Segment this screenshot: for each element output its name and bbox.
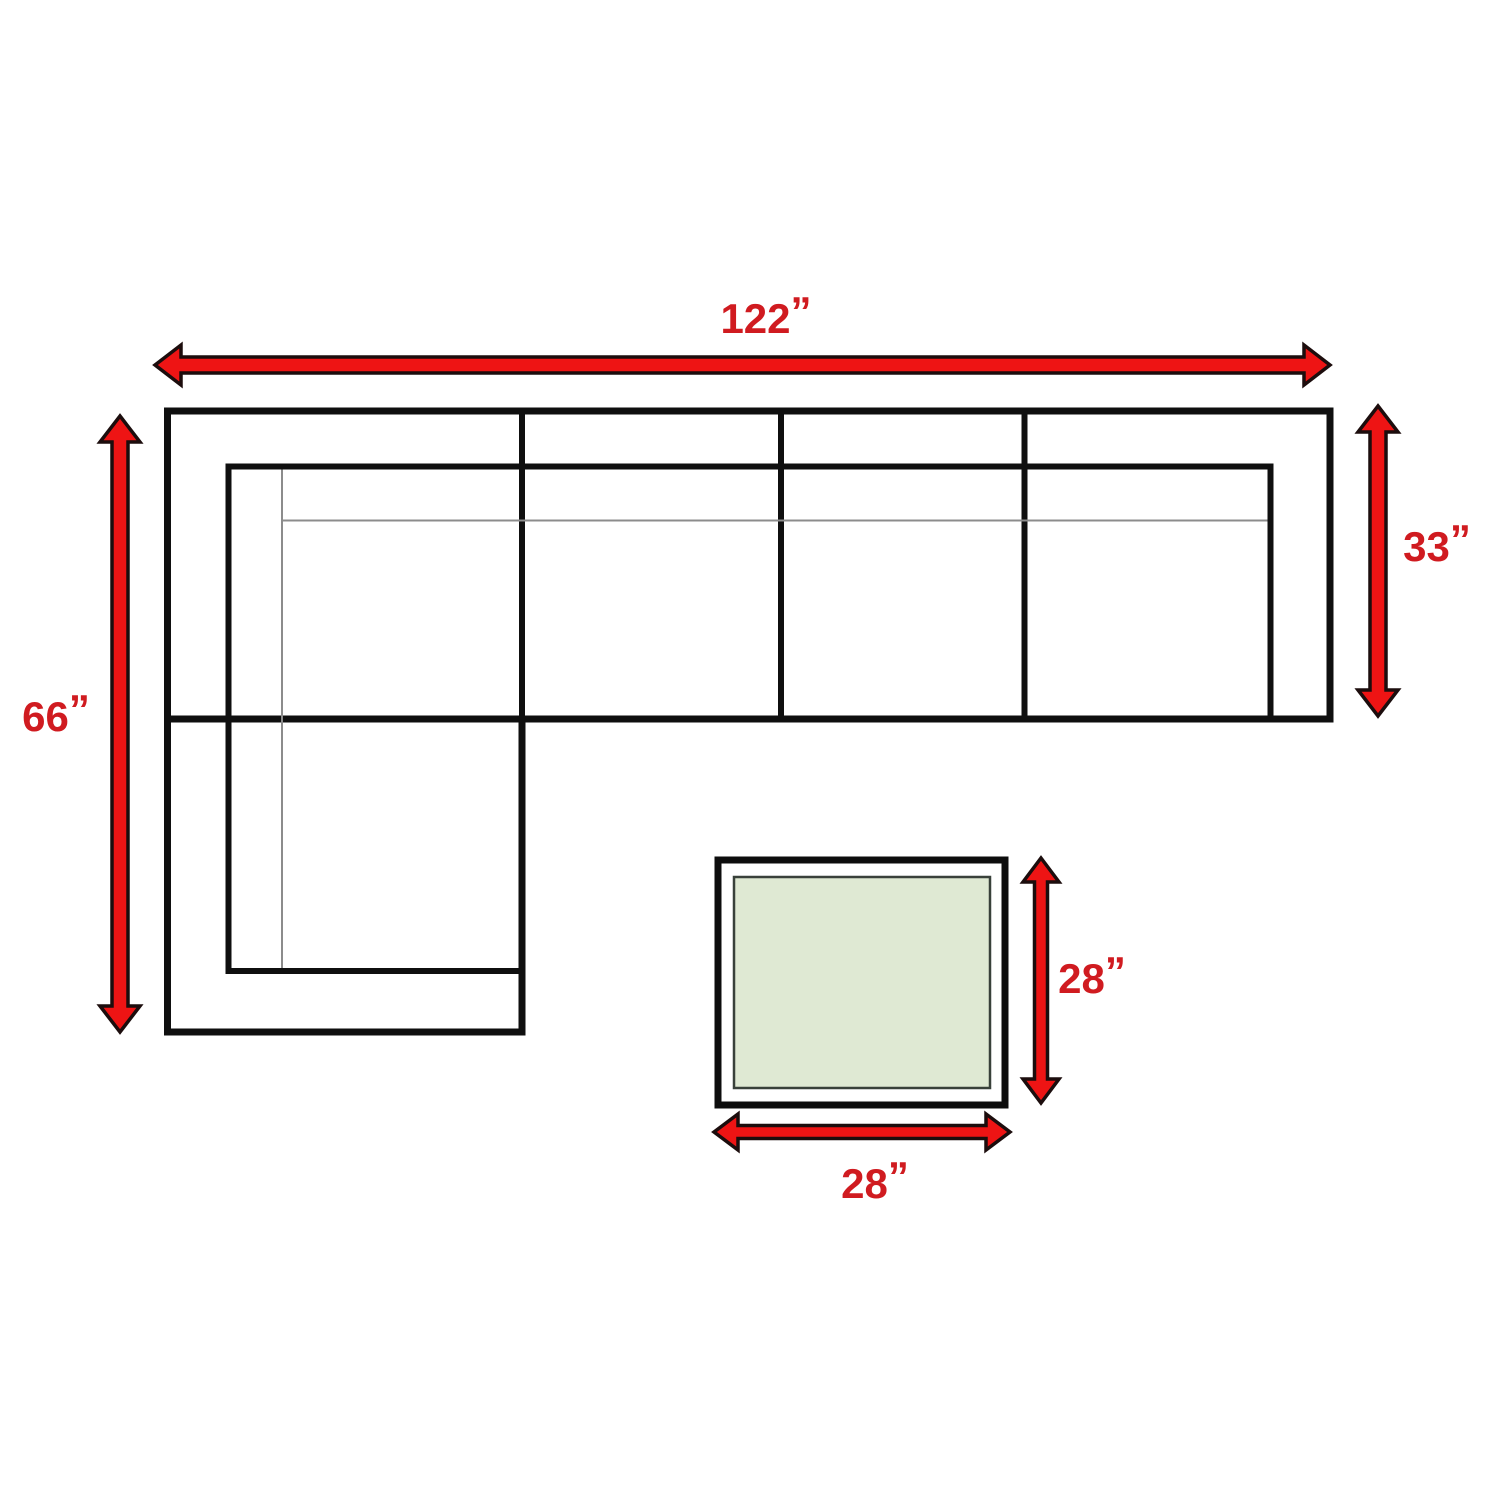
svg-text:122”: 122” — [720, 288, 811, 342]
svg-text:28”: 28” — [1058, 948, 1126, 1002]
svg-text:33”: 33” — [1403, 516, 1471, 570]
svg-text:66”: 66” — [22, 686, 90, 740]
svg-text:28”: 28” — [841, 1153, 909, 1207]
